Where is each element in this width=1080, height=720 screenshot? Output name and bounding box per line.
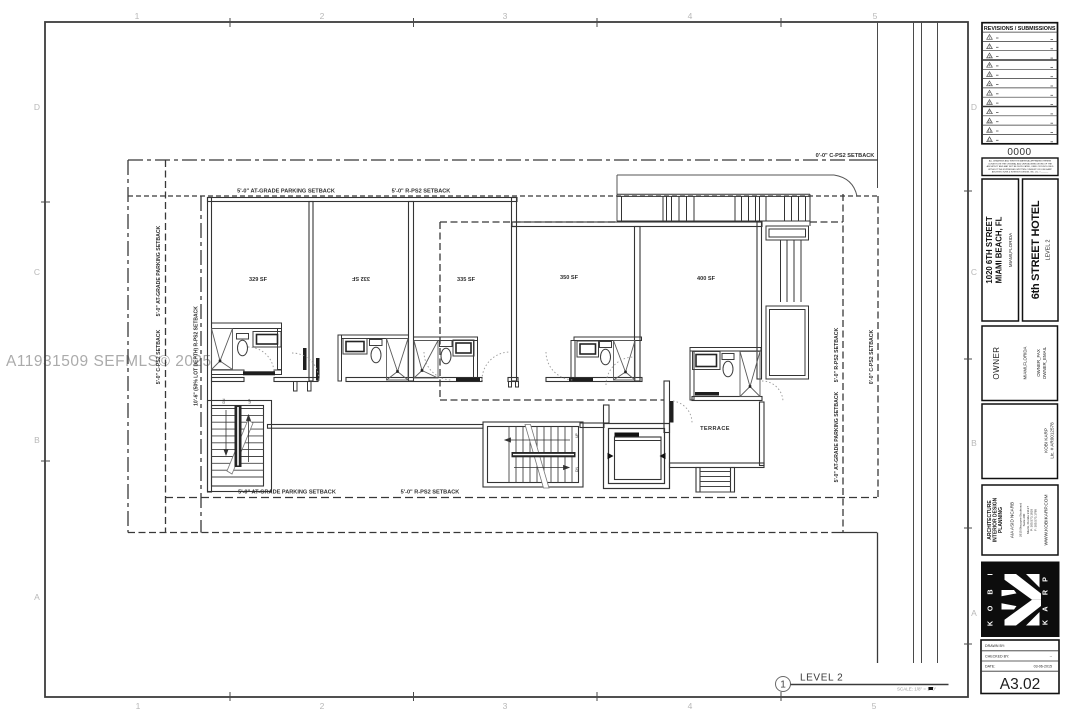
svg-text:B: B [34, 435, 40, 445]
svg-text:ARCHITECTURE & INTERIOR DESIGN: ARCHITECTURE & INTERIOR DESIGN, INC. LIC… [992, 171, 1049, 174]
svg-text:F: 305.573.1788: F: 305.573.1788 [1033, 509, 1037, 531]
svg-text:8: 8 [989, 101, 991, 105]
svg-text:WITHOUT THE EXPRESSED WRITTEN: WITHOUT THE EXPRESSED WRITTEN CONSENT OF… [988, 168, 1052, 171]
svg-text:LEVEL 2: LEVEL 2 [800, 673, 843, 684]
svg-text:10'-6" (50% LOT DEPTH) R-PS2 S: 10'-6" (50% LOT DEPTH) R-PS2 SETBACK [194, 306, 200, 406]
svg-text:MIAMI,FLORIDA: MIAMI,FLORIDA [1023, 346, 1028, 379]
svg-text:CHECKED BY:: CHECKED BY: [985, 654, 1009, 658]
svg-text:MIAMI,FLORIDA: MIAMI,FLORIDA [1008, 232, 1013, 267]
svg-text:1: 1 [136, 701, 141, 711]
svg-text:1020 6TH STREET: 1020 6TH STREET [985, 216, 994, 283]
svg-text:UP: UP [248, 398, 252, 403]
svg-text:C: C [971, 267, 977, 277]
svg-text:3: 3 [989, 54, 991, 58]
svg-text:3: 3 [503, 11, 508, 21]
svg-text:0'-0" C-PS2 SETBACK: 0'-0" C-PS2 SETBACK [869, 330, 875, 385]
svg-text:PLANNING: PLANNING [998, 507, 1004, 533]
svg-text:UP: UP [575, 433, 579, 438]
svg-text:OWNER_FAX: OWNER_FAX [1036, 349, 1041, 377]
svg-text:B: B [971, 438, 977, 448]
svg-text:6th STREET HOTEL: 6th STREET HOTEL [1030, 200, 1042, 299]
svg-text:332 SF: 332 SF [351, 275, 370, 281]
svg-text:MIAMI BEACH, FL: MIAMI BEACH, FL [995, 216, 1004, 283]
svg-text:2: 2 [989, 45, 991, 49]
svg-text:LEVEL 2: LEVEL 2 [1046, 239, 1052, 260]
svg-text:0'-0" C-PS2 SETBACK: 0'-0" C-PS2 SETBACK [816, 153, 875, 159]
svg-text:5: 5 [872, 701, 877, 711]
svg-text:ARCHITECT AND MAY NOT BE DUPLI: ARCHITECT AND MAY NOT BE DUPLICATED, USE… [987, 165, 1054, 168]
svg-text:4: 4 [688, 11, 693, 21]
svg-text:4: 4 [688, 701, 693, 711]
svg-text:11: 11 [988, 129, 992, 133]
svg-text:WWW.KOBIKARP.COM: WWW.KOBIKARP.COM [1044, 494, 1050, 545]
svg-text:5'-0" R-PS2 SETBACK: 5'-0" R-PS2 SETBACK [834, 328, 840, 383]
svg-text:B: B [986, 589, 995, 594]
svg-text:400 SF: 400 SF [697, 276, 716, 282]
svg-text:P: P [1041, 577, 1050, 582]
svg-text:OWNER: OWNER [992, 346, 1001, 379]
svg-text:2: 2 [320, 701, 325, 711]
svg-text:I: I [986, 574, 995, 576]
svg-text:1: 1 [780, 680, 786, 691]
svg-text:K: K [986, 620, 995, 626]
svg-text:OWNER_EMAIL: OWNER_EMAIL [1042, 346, 1047, 379]
svg-text:AIA ASID NCARB: AIA ASID NCARB [1010, 502, 1015, 538]
svg-text:5'-0" AT-GRADE PARKING SETBACK: 5'-0" AT-GRADE PARKING SETBACK [237, 189, 335, 195]
svg-text:DRAWN BY:: DRAWN BY: [985, 644, 1005, 648]
svg-text:4: 4 [989, 64, 991, 68]
svg-text:5'-0" AT-GRADE PARKING SETBACK: 5'-0" AT-GRADE PARKING SETBACK [238, 490, 336, 496]
svg-text:C: C [34, 267, 40, 277]
svg-text:5'-0" AT-GRADE PARKING SETBACK: 5'-0" AT-GRADE PARKING SETBACK [834, 391, 840, 482]
svg-text:ALL DRAWINGS AND WRITTEN MATER: ALL DRAWINGS AND WRITTEN MATERIAL APPEAR… [989, 160, 1052, 163]
svg-text:0000: 0000 [1007, 147, 1031, 158]
svg-text:5'-0" R-PS2 SETBACK: 5'-0" R-PS2 SETBACK [401, 490, 460, 496]
svg-text:2: 2 [320, 11, 325, 21]
svg-text:R: R [1041, 589, 1050, 595]
svg-text:5'-0" AT-GRADE PARKING SETBACK: 5'-0" AT-GRADE PARKING SETBACK [156, 225, 162, 316]
svg-text:D: D [34, 102, 40, 112]
svg-text:A3.02: A3.02 [1000, 676, 1041, 693]
svg-text:1: 1 [135, 11, 140, 21]
svg-text:5'-0" R-PS2 SETBACK: 5'-0" R-PS2 SETBACK [392, 189, 451, 195]
svg-text:5: 5 [989, 73, 991, 77]
svg-text:D: D [971, 102, 977, 112]
svg-text:KOBI KARP: KOBI KARP [1044, 428, 1049, 453]
svg-text:1: 1 [989, 36, 991, 40]
svg-text:DATE:: DATE: [985, 665, 995, 669]
svg-text:REVISIONS / SUBMISSIONS: REVISIONS / SUBMISSIONS [984, 26, 1056, 32]
svg-text:03-06-2015: 03-06-2015 [1034, 665, 1052, 669]
svg-text:5: 5 [873, 11, 878, 21]
svg-text:A: A [971, 608, 977, 618]
svg-text:7: 7 [989, 92, 991, 96]
svg-text:3: 3 [503, 701, 508, 711]
svg-text:10: 10 [988, 120, 992, 124]
svg-text:DN: DN [575, 467, 579, 472]
svg-text:5'-0" C-PS2 SETBACK: 5'-0" C-PS2 SETBACK [156, 330, 162, 385]
svg-text:A: A [34, 592, 40, 602]
svg-text:6: 6 [989, 82, 991, 86]
svg-text:335 SF: 335 SF [457, 277, 476, 283]
svg-text:9: 9 [989, 110, 991, 114]
svg-text:O: O [986, 605, 995, 611]
svg-text:DN: DN [222, 398, 226, 403]
svg-text:A11931509 SEFMLS© 2025: A11931509 SEFMLS© 2025 [6, 353, 212, 370]
svg-text:329 SF: 329 SF [249, 277, 268, 283]
svg-text:K: K [1041, 619, 1050, 625]
svg-text:12: 12 [988, 138, 992, 142]
svg-text:Lic. # AR0012578: Lic. # AR0012578 [1050, 422, 1055, 459]
svg-text:CONSTITUTE THE ORIGINAL AND UN: CONSTITUTE THE ORIGINAL AND UNPUBLISHED … [988, 162, 1052, 165]
svg-text:TERRACE: TERRACE [700, 426, 730, 432]
svg-text:A: A [1041, 606, 1050, 611]
svg-text:350 SF: 350 SF [560, 275, 579, 281]
